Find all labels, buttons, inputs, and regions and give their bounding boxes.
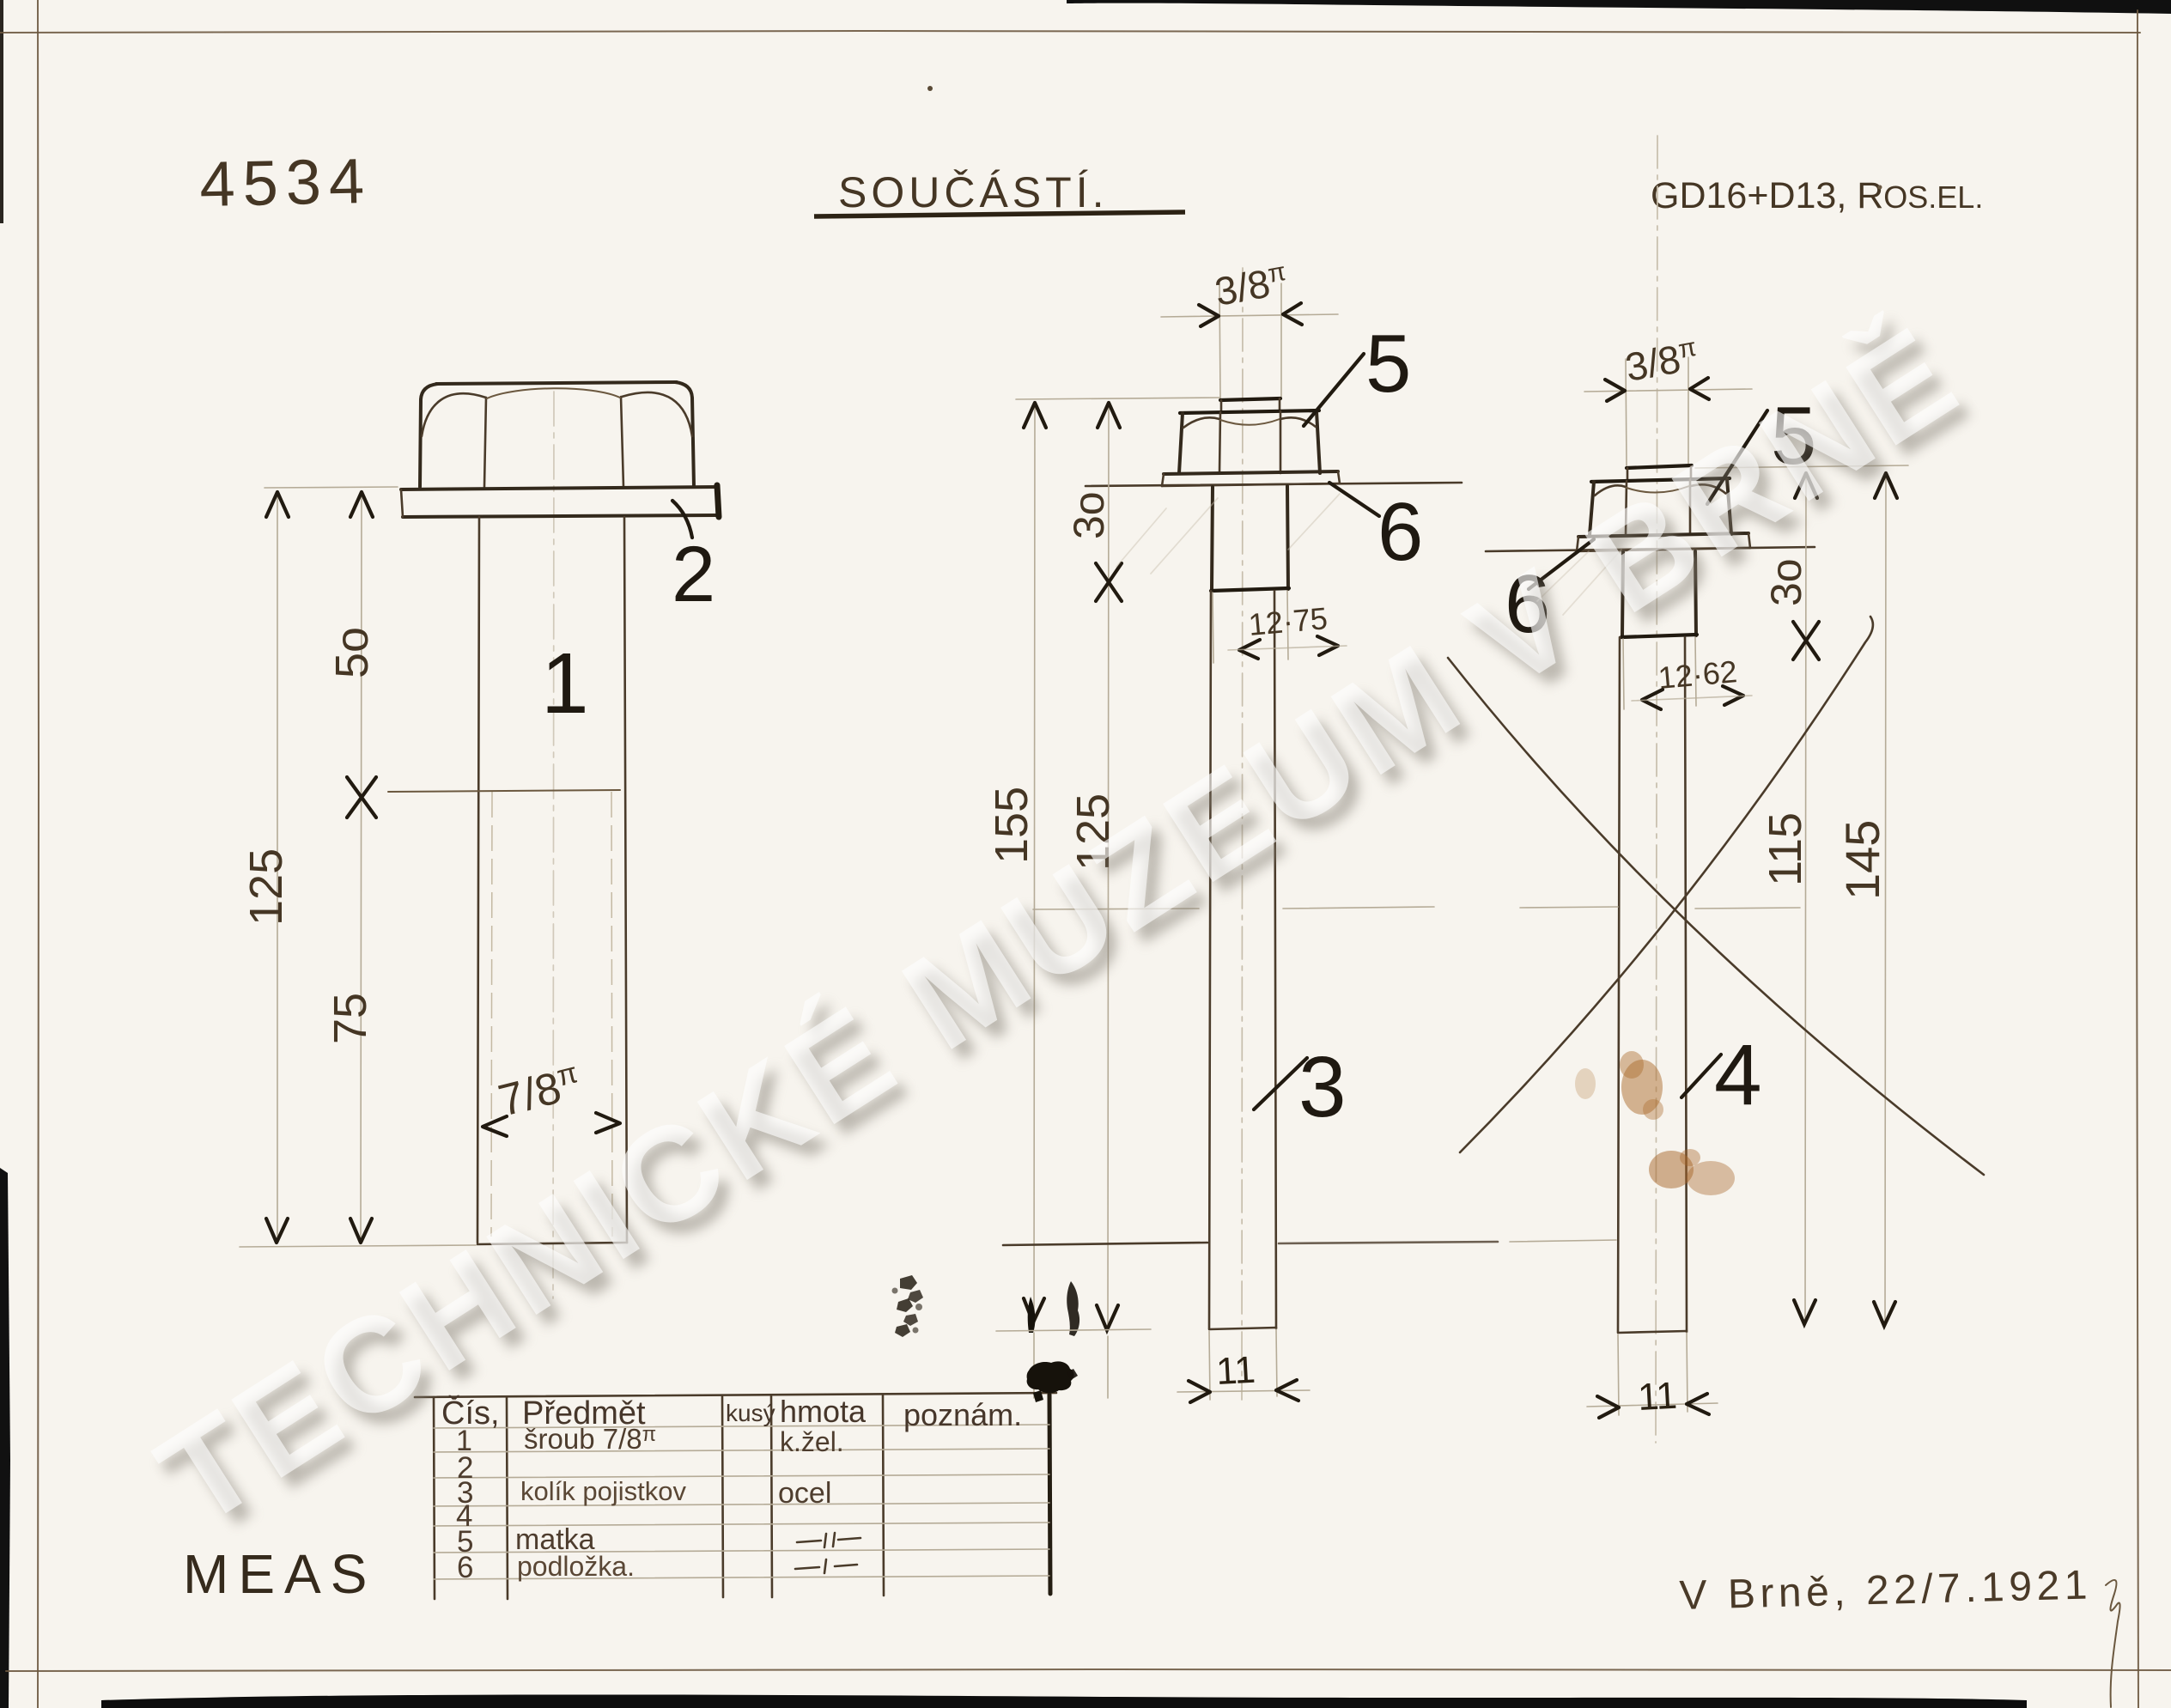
svg-text:poznám.: poznám. [903, 1397, 1022, 1432]
svg-text:4534: 4534 [199, 145, 373, 220]
svg-text:11: 11 [1215, 1349, 1256, 1393]
svg-text:kusý: kusý [726, 1400, 775, 1426]
svg-text:GD16+D13, ROS.EL.: GD16+D13, ROS.EL. [1651, 175, 1983, 216]
svg-text:5o: 5o [326, 627, 378, 678]
svg-text:11: 11 [1637, 1375, 1678, 1419]
svg-text:6: 6 [1377, 486, 1423, 578]
svg-text:kolík pojistkov: kolík pojistkov [520, 1476, 686, 1506]
svg-text:5: 5 [1365, 318, 1411, 410]
svg-text:hmota: hmota [780, 1394, 867, 1429]
svg-text:ocel: ocel [778, 1477, 831, 1510]
svg-text:75: 75 [325, 993, 376, 1044]
svg-text:1: 1 [541, 635, 589, 732]
svg-text:SOUČÁSTÍ.: SOUČÁSTÍ. [838, 168, 1108, 216]
svg-text:3: 3 [1298, 1039, 1347, 1135]
svg-text:3o: 3o [1065, 491, 1113, 539]
svg-text:125: 125 [240, 848, 292, 926]
svg-text:115: 115 [1760, 812, 1811, 886]
svg-text:k.žel.: k.žel. [780, 1426, 844, 1457]
svg-text:6: 6 [457, 1551, 473, 1584]
svg-text:šroub 7/8π: šroub 7/8π [524, 1423, 656, 1455]
svg-text:155: 155 [986, 787, 1037, 864]
svg-text:2: 2 [672, 531, 715, 618]
svg-text:145: 145 [1835, 820, 1889, 900]
svg-text:podložka.: podložka. [517, 1551, 635, 1582]
svg-text:MEAS: MEAS [183, 1543, 376, 1605]
svg-text:4: 4 [1714, 1027, 1762, 1123]
